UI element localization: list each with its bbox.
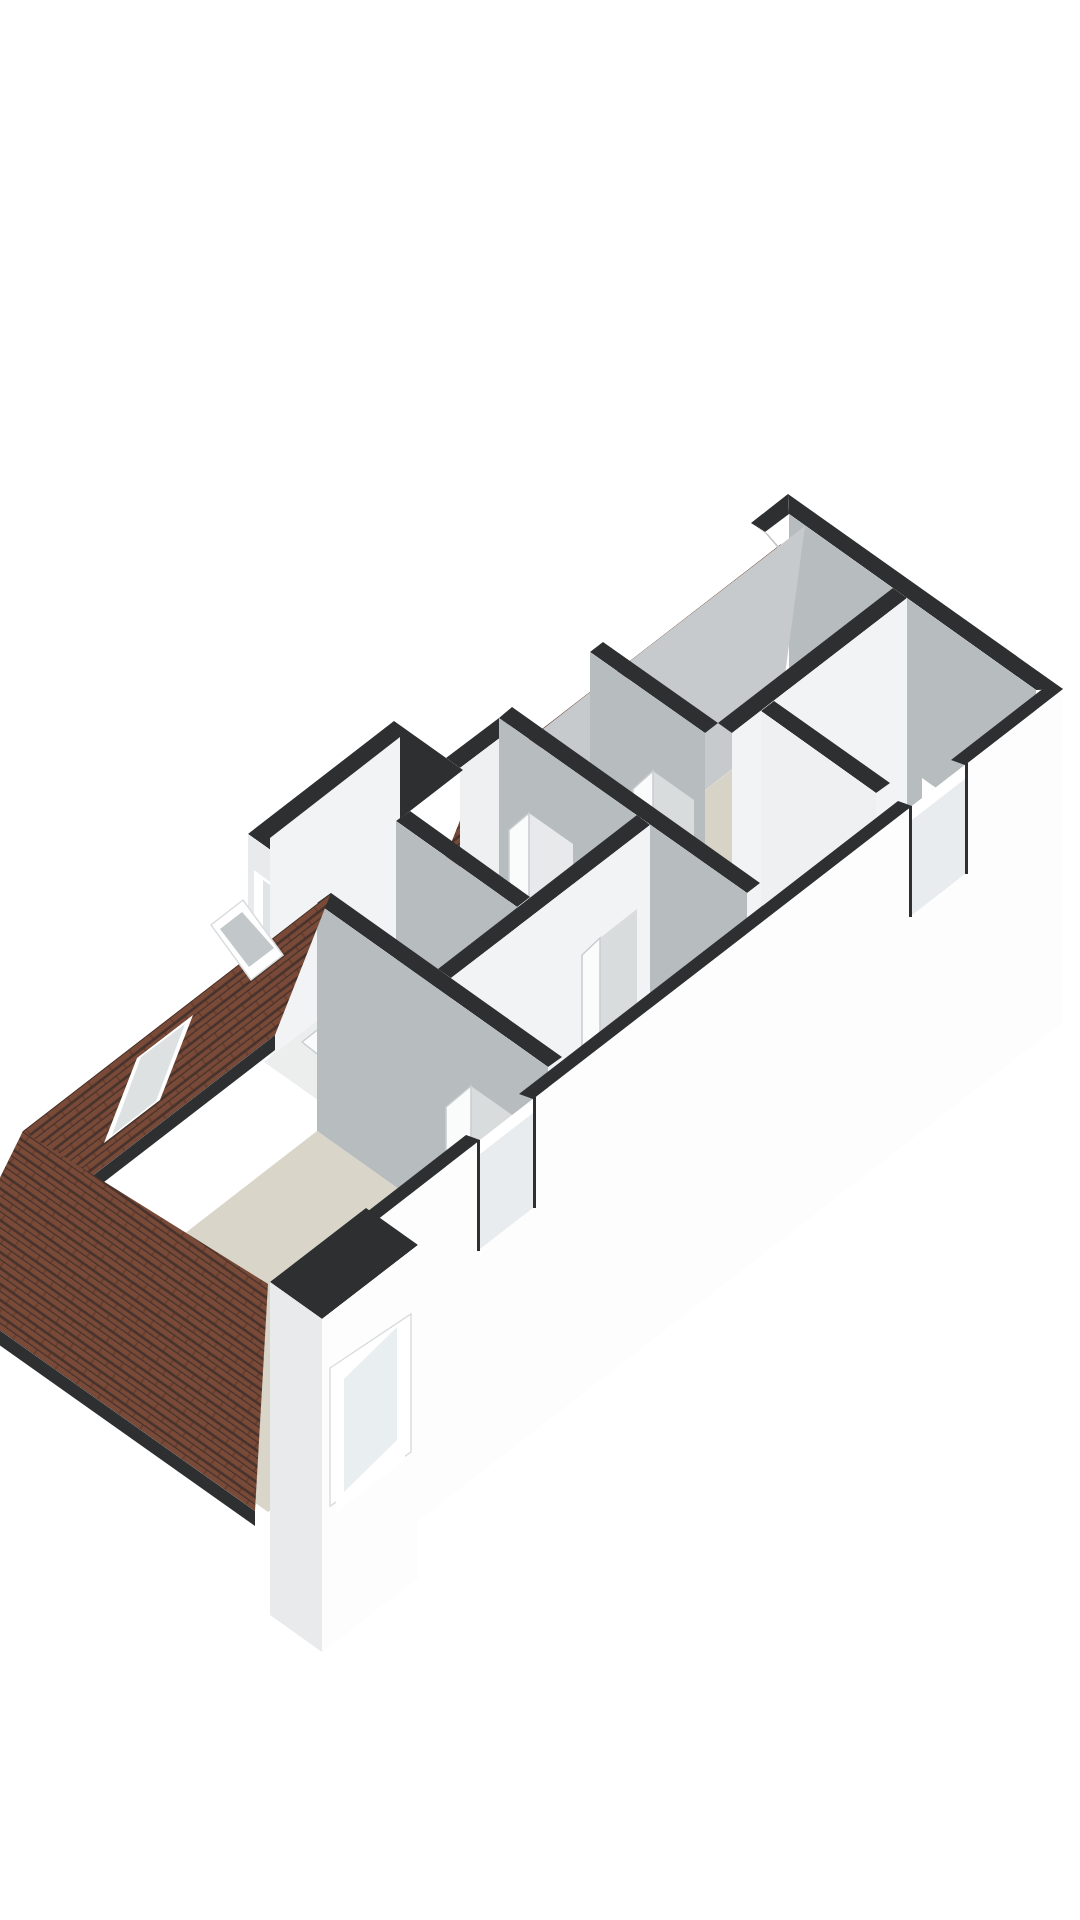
- floorplan-page: [0, 0, 1080, 1920]
- se-window1-jamb-left: [477, 1140, 480, 1251]
- se-window2-jamb-left: [909, 806, 912, 917]
- se-window2-jamb-right: [965, 763, 968, 874]
- roof-hip-swend-tiles: [0, 1131, 268, 1511]
- gable-ne-top-band: [751, 494, 789, 532]
- floorplan-root: [0, 494, 1063, 1652]
- floorplan-3d-render: [0, 0, 1080, 1920]
- dormer-sw-sw-face: [270, 1282, 322, 1652]
- se-window1-jamb-right: [533, 1097, 536, 1208]
